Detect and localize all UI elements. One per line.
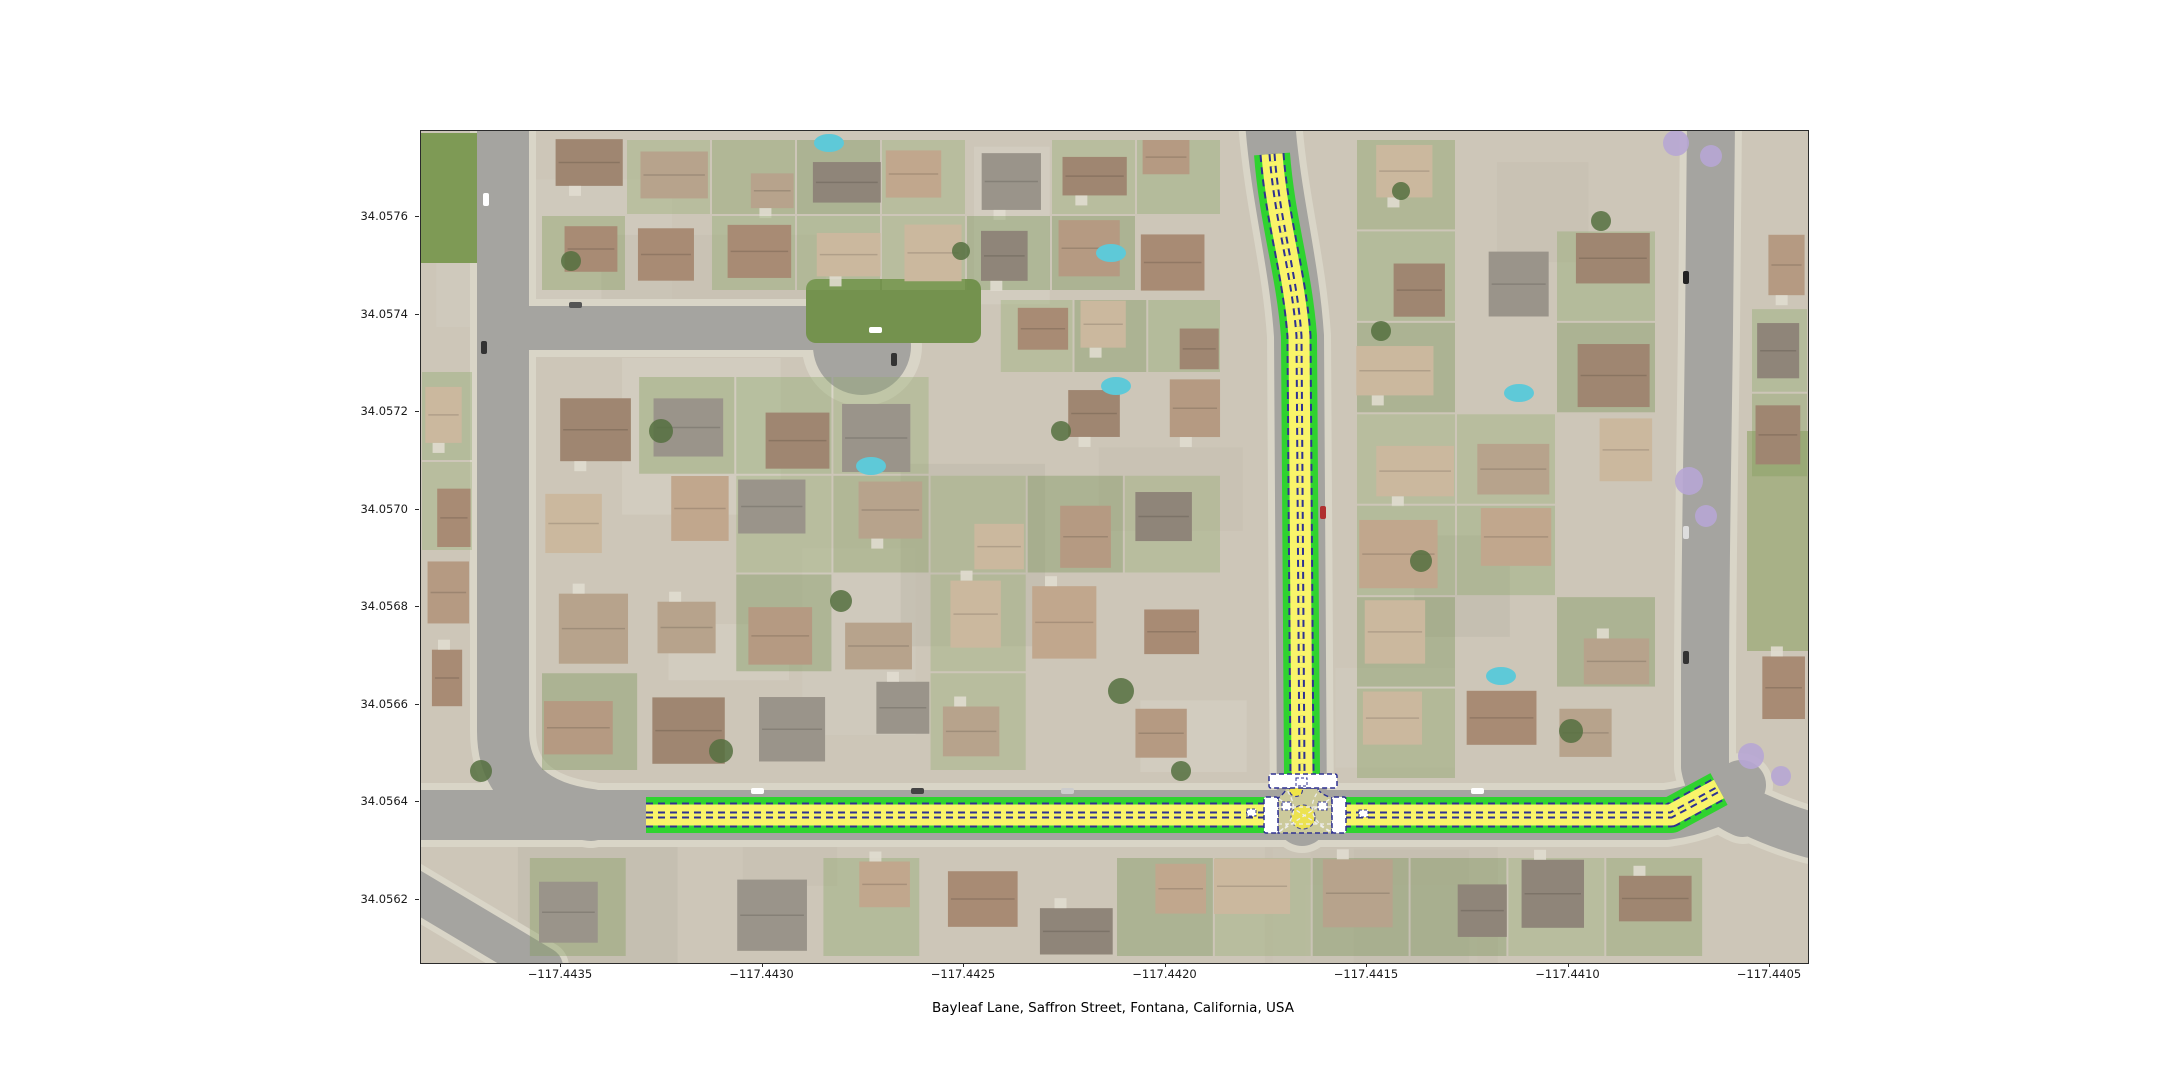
y-tick-mark — [415, 314, 419, 315]
pool — [1486, 667, 1516, 685]
y-tick-label: 34.0562 — [0, 893, 408, 905]
car — [1471, 788, 1484, 794]
figure-canvas: 34.057634.057434.057234.057034.056834.05… — [0, 0, 2172, 1080]
tree — [1591, 211, 1611, 231]
aerial-map — [421, 131, 1808, 963]
car — [481, 341, 487, 354]
purple-tree — [1700, 145, 1722, 167]
y-tick-label: 34.0564 — [0, 795, 408, 807]
y-tick-label: 34.0574 — [0, 308, 408, 320]
x-tick-label: −117.4420 — [1132, 968, 1197, 980]
car — [1061, 788, 1074, 794]
x-tick-label: −117.4430 — [729, 968, 794, 980]
purple-tree — [1771, 766, 1791, 786]
purple-tree — [1675, 467, 1703, 495]
car — [891, 353, 897, 366]
x-tick-label: −117.4405 — [1737, 968, 1802, 980]
car — [569, 302, 582, 308]
purple-tree — [1663, 131, 1689, 156]
car — [1683, 271, 1689, 284]
x-tick-label: −117.4425 — [931, 968, 996, 980]
tree — [470, 760, 492, 782]
tree — [1051, 421, 1071, 441]
tree — [1371, 321, 1391, 341]
y-tick-mark — [415, 899, 419, 900]
tree — [561, 251, 581, 271]
y-tick-mark — [415, 606, 419, 607]
y-tick-label: 34.0566 — [0, 698, 408, 710]
x-tick-mark — [560, 963, 561, 967]
pool — [1096, 244, 1126, 262]
pool — [814, 134, 844, 152]
tree — [952, 242, 970, 260]
y-tick-label: 34.0572 — [0, 405, 408, 417]
y-tick-mark — [415, 216, 419, 217]
tree — [1171, 761, 1191, 781]
x-tick-mark — [1769, 963, 1770, 967]
tree — [709, 739, 733, 763]
x-tick-label: −117.4410 — [1535, 968, 1600, 980]
crosswalk-west — [1264, 797, 1278, 833]
y-tick-label: 34.0568 — [0, 600, 408, 612]
y-tick-mark — [415, 509, 419, 510]
y-tick-mark — [415, 411, 419, 412]
x-tick-label: −117.4435 — [528, 968, 593, 980]
tree — [649, 419, 673, 443]
y-tick-label: 34.0570 — [0, 503, 408, 515]
tree — [1410, 550, 1432, 572]
x-tick-mark — [963, 963, 964, 967]
tree — [1559, 719, 1583, 743]
pool — [1504, 384, 1534, 402]
y-tick-label: 34.0576 — [0, 210, 408, 222]
x-tick-label: −117.4415 — [1334, 968, 1399, 980]
car — [483, 193, 489, 206]
x-tick-mark — [1165, 963, 1166, 967]
x-tick-mark — [1568, 963, 1569, 967]
tree — [830, 590, 852, 612]
pool — [1101, 377, 1131, 395]
figure-title: Bayleaf Lane, Saffron Street, Fontana, C… — [932, 1000, 1294, 1016]
car — [1683, 651, 1689, 664]
pool — [856, 457, 886, 475]
car — [911, 788, 924, 794]
crosswalk-east — [1332, 797, 1346, 833]
car — [869, 327, 882, 333]
x-tick-mark — [762, 963, 763, 967]
x-tick-mark — [1366, 963, 1367, 967]
car — [751, 788, 764, 794]
tree — [1108, 678, 1134, 704]
car — [1683, 526, 1689, 539]
map-plot — [420, 130, 1809, 964]
purple-tree — [1738, 743, 1764, 769]
y-tick-mark — [415, 801, 419, 802]
tree — [1392, 182, 1410, 200]
car — [1320, 506, 1326, 519]
purple-tree — [1695, 505, 1717, 527]
y-tick-mark — [415, 704, 419, 705]
